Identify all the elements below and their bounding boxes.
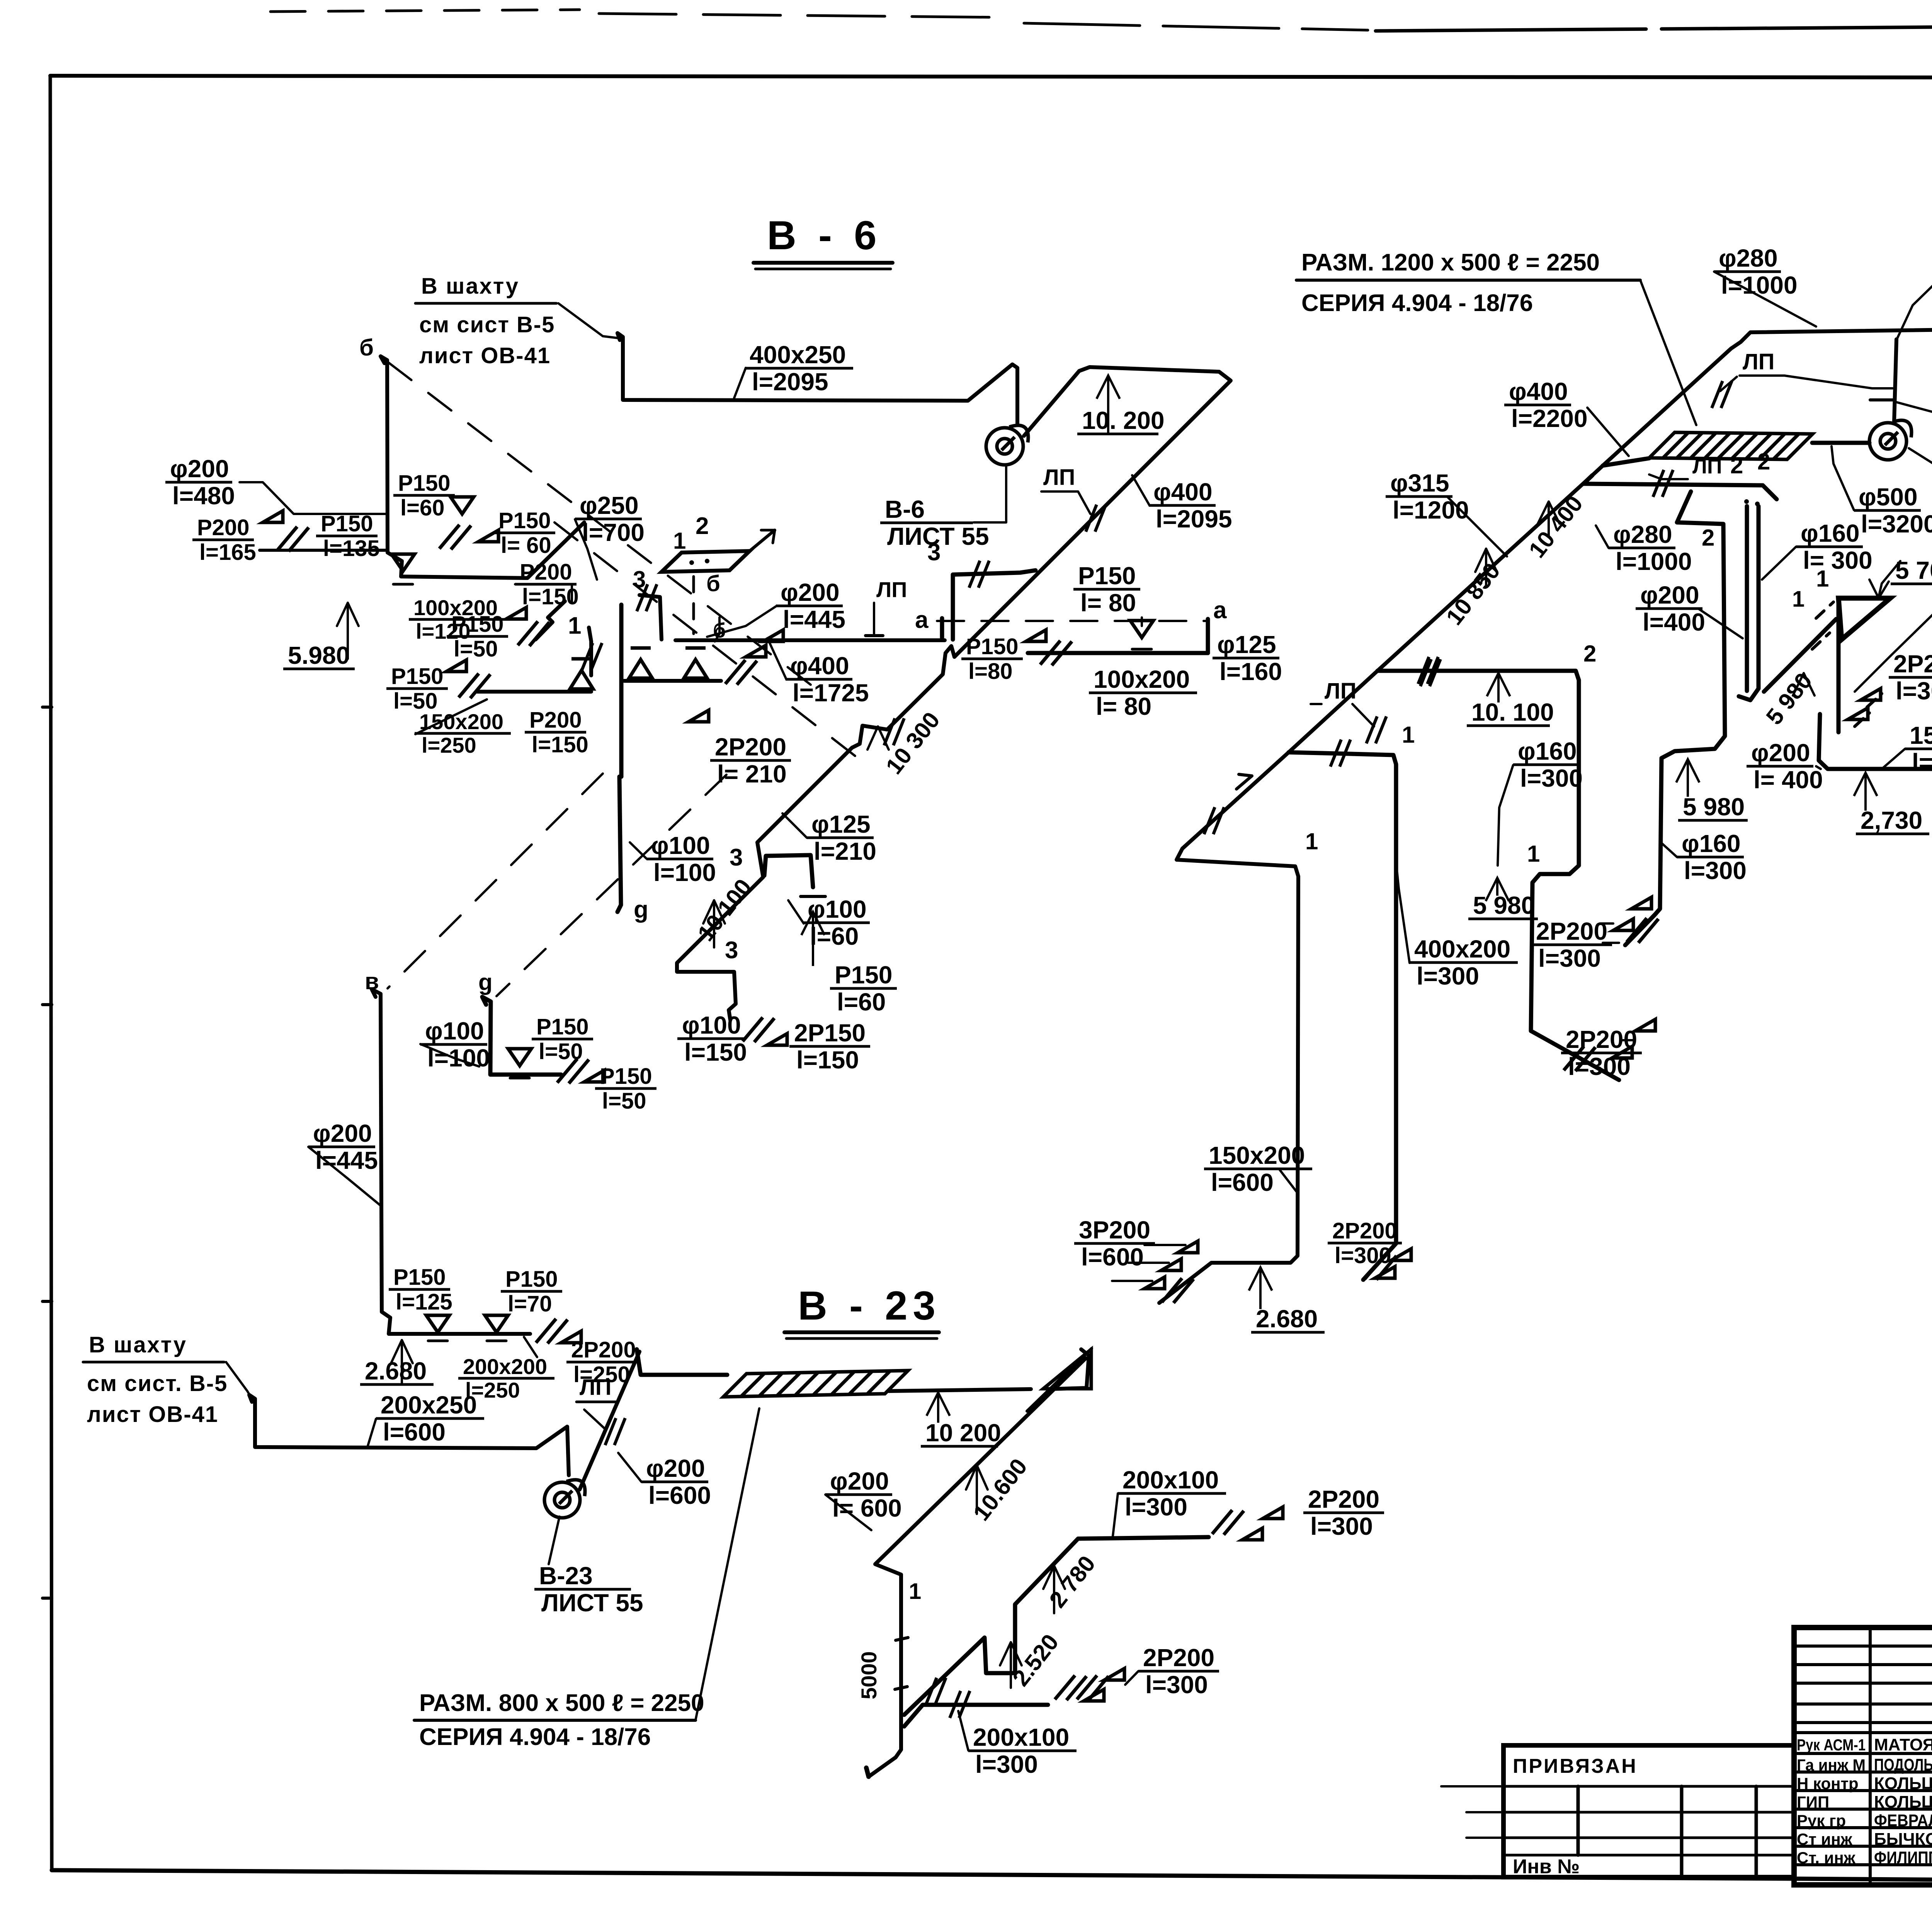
svg-text:1: 1 [568,612,581,639]
svg-text:l=50: l=50 [602,1088,646,1114]
svg-text:l=125: l=125 [396,1289,452,1315]
svg-text:3: 3 [927,539,940,566]
svg-text:2: 2 [1730,452,1743,478]
svg-text:l=1200: l=1200 [1393,496,1469,524]
svg-text:ГИП: ГИП [1797,1793,1829,1811]
svg-text:РАЗМ. 1200 х 500 ℓ = 2250: РАЗМ. 1200 х 500 ℓ = 2250 [1301,249,1600,276]
svg-text:1: 1 [1816,566,1829,592]
svg-text:В - 6: В - 6 [767,213,882,258]
svg-text:2Р200: 2Р200 [1143,1644,1214,1672]
svg-text:б: б [359,335,374,361]
svg-text:φ100: φ100 [808,895,867,923]
svg-text:l=50: l=50 [454,636,498,662]
svg-text:l=165: l=165 [199,540,256,565]
svg-text:l=150: l=150 [522,584,579,609]
svg-text:l=100: l=100 [653,859,716,886]
svg-text:l=150: l=150 [684,1038,747,1066]
svg-text:l=300: l=300 [1335,1243,1391,1268]
svg-text:φ200: φ200 [781,578,840,606]
svg-text:l=300: l=300 [1520,764,1583,792]
svg-text:l= 80: l= 80 [1096,692,1151,720]
svg-text:см сист. В-5: см сист. В-5 [87,1371,228,1396]
svg-text:l=300: l=300 [1896,677,1932,705]
svg-text:150x200: 150x200 [1209,1141,1305,1169]
svg-text:l=160: l=160 [1219,658,1282,685]
svg-text:Р150: Р150 [498,508,551,533]
svg-text:l=480: l=480 [172,482,235,510]
svg-text:l=300: l=300 [1125,1493,1187,1521]
svg-text:5.980: 5.980 [288,641,350,669]
svg-text:3: 3 [730,844,743,871]
svg-text:l=300: l=300 [1538,944,1601,972]
svg-text:l=1000: l=1000 [1616,548,1692,575]
svg-text:3Р200: 3Р200 [1079,1216,1150,1244]
svg-text:φ100: φ100 [425,1017,484,1045]
svg-text:5000: 5000 [857,1651,881,1699]
svg-text:400x200: 400x200 [1414,935,1510,963]
svg-text:2Р200: 2Р200 [1308,1485,1379,1513]
svg-text:В-23: В-23 [539,1562,593,1590]
svg-text:Н контр: Н контр [1797,1774,1859,1793]
svg-text:φ100: φ100 [682,1011,741,1039]
svg-text:l=1725: l=1725 [793,679,869,707]
svg-text:см сист В-5: см сист В-5 [419,312,555,337]
svg-text:l=300: l=300 [1310,1512,1373,1540]
svg-text:l=600: l=600 [648,1481,711,1509]
svg-text:l= 210: l= 210 [717,760,787,788]
svg-text:l=300: l=300 [1417,962,1479,990]
svg-text:Р150: Р150 [1078,562,1136,590]
svg-text:ЛП: ЛП [1692,455,1722,478]
svg-text:l=2095: l=2095 [752,368,828,396]
svg-text:Га инж М: Га инж М [1797,1756,1866,1774]
svg-text:Р200: Р200 [197,515,249,540]
svg-text:ЛП: ЛП [876,577,907,602]
svg-text:l=2095: l=2095 [1156,505,1232,533]
svg-text:l=2200: l=2200 [1511,405,1588,432]
svg-text:l=60: l=60 [400,495,445,520]
svg-text:l=400: l=400 [1643,608,1705,636]
svg-text:БЫЧКОВА: БЫЧКОВА [1874,1830,1932,1849]
svg-text:Р150: Р150 [393,1265,446,1290]
svg-text:а: а [915,607,929,633]
svg-text:2.680: 2.680 [365,1357,427,1385]
svg-text:φ280: φ280 [1613,520,1672,548]
svg-text:200x100: 200x100 [973,1723,1069,1751]
svg-text:l=210: l=210 [814,837,876,865]
svg-text:150x150: 150x150 [1910,721,1932,749]
svg-text:3: 3 [725,937,738,964]
svg-text:l=400: l=400 [1912,748,1932,776]
svg-text:В шахту: В шахту [89,1332,187,1357]
svg-text:Р150: Р150 [321,511,373,536]
svg-text:l=80: l=80 [968,659,1013,684]
svg-text:l=300: l=300 [1684,857,1747,884]
svg-text:2Р200: 2Р200 [715,733,786,761]
svg-text:лист ОВ-41: лист ОВ-41 [419,343,551,368]
svg-text:Ст инж: Ст инж [1797,1830,1853,1848]
svg-text:φ125: φ125 [1217,631,1276,658]
svg-text:Р200: Р200 [529,707,582,733]
svg-text:КОЛЬЦОВА: КОЛЬЦОВА [1874,1793,1932,1811]
svg-text:Р150: Р150 [835,961,892,989]
svg-text:Р150: Р150 [536,1014,588,1039]
svg-text:l=300: l=300 [975,1750,1038,1778]
svg-text:ЛП: ЛП [1325,679,1356,704]
svg-text:400x250: 400x250 [750,341,846,369]
svg-text:2: 2 [1702,525,1714,551]
svg-text:1: 1 [909,1579,921,1604]
svg-text:φ200: φ200 [170,455,229,483]
svg-text:l=300: l=300 [1145,1671,1208,1699]
svg-text:200x200: 200x200 [463,1354,547,1379]
svg-text:2Р200: 2Р200 [571,1337,636,1362]
svg-text:ФИЛИППОВА: ФИЛИППОВА [1874,1848,1932,1867]
svg-text:10. 100: 10. 100 [1471,698,1554,726]
svg-text:φ500: φ500 [1859,483,1918,511]
svg-text:Р150: Р150 [966,634,1018,659]
svg-text:Р150: Р150 [398,471,450,496]
svg-text:10 200: 10 200 [925,1419,1001,1447]
svg-text:l= 60: l= 60 [501,533,551,558]
svg-text:1: 1 [1402,722,1415,748]
svg-text:φ315: φ315 [1390,469,1449,497]
svg-text:2Р150: 2Р150 [794,1019,866,1047]
svg-text:l=150: l=150 [532,732,588,757]
svg-text:Р150: Р150 [600,1064,652,1089]
svg-text:l=250: l=250 [422,733,476,757]
svg-text:φ200: φ200 [646,1454,705,1482]
svg-text:200x100: 200x100 [1122,1466,1219,1494]
svg-text:5 980: 5 980 [1473,891,1535,919]
svg-text:В шахту: В шахту [421,274,519,299]
svg-text:150x200: 150x200 [419,709,503,734]
svg-text:2Р200: 2Р200 [1332,1218,1397,1243]
svg-text:5 980: 5 980 [1683,793,1745,821]
svg-text:ЛП: ЛП [1743,349,1774,374]
svg-text:φ160: φ160 [1801,519,1860,547]
svg-text:В - 23: В - 23 [798,1283,941,1328]
svg-text:лист ОВ-41: лист ОВ-41 [87,1402,218,1427]
svg-text:l=600: l=600 [383,1418,446,1446]
svg-text:l= 300: l= 300 [1803,546,1872,574]
svg-text:б: б [706,571,720,596]
svg-text:φ200: φ200 [1640,581,1699,609]
svg-text:ПРИВЯЗАН: ПРИВЯЗАН [1513,1755,1638,1777]
svg-text:РАЗМ. 800 х 500 ℓ = 2250: РАЗМ. 800 х 500 ℓ = 2250 [419,1690,704,1716]
svg-text:l=135: l=135 [323,536,380,561]
svg-text:φ125: φ125 [811,810,871,838]
svg-text:l=70: l=70 [508,1291,552,1316]
svg-text:ЛИСТ 55: ЛИСТ 55 [541,1589,643,1617]
svg-text:Р150: Р150 [451,612,503,637]
svg-text:1: 1 [1792,587,1804,612]
svg-text:2: 2 [1583,641,1596,667]
svg-text:l=60: l=60 [837,988,886,1016]
svg-text:φ160: φ160 [1682,830,1741,857]
svg-text:СЕРИЯ 4.904 - 18/76: СЕРИЯ 4.904 - 18/76 [419,1724,651,1750]
svg-text:φ160: φ160 [1518,737,1577,765]
svg-text:g: g [478,969,493,995]
svg-text:g: g [634,896,648,923]
svg-text:l=445: l=445 [783,605,845,633]
svg-text:l=600: l=600 [1081,1243,1144,1271]
svg-text:Р200: Р200 [520,560,572,585]
svg-text:φ200: φ200 [313,1119,372,1147]
svg-text:l=700: l=700 [582,519,645,546]
svg-text:φ400: φ400 [1153,478,1213,506]
svg-text:φ200: φ200 [830,1467,889,1495]
svg-text:φ400: φ400 [1509,378,1568,405]
svg-text:2Р200: 2Р200 [1893,650,1932,678]
svg-text:l=100: l=100 [427,1044,490,1072]
svg-text:ЛП: ЛП [1043,465,1075,490]
svg-text:а: а [1213,597,1227,624]
svg-text:1: 1 [673,528,686,554]
svg-text:Ст. инж: Ст. инж [1797,1849,1856,1867]
svg-text:1: 1 [1527,841,1540,867]
svg-text:Рук АСМ-1: Рук АСМ-1 [1797,1736,1866,1754]
svg-text:1: 1 [1305,828,1318,854]
svg-text:2,730: 2,730 [1861,806,1922,834]
svg-text:2Р200: 2Р200 [1536,917,1607,945]
svg-text:Рук гр: Рук гр [1797,1811,1846,1830]
svg-text:Р150: Р150 [505,1267,558,1292]
svg-text:МАТОЯН: МАТОЯН [1874,1735,1932,1754]
svg-text:100x200: 100x200 [1094,665,1190,693]
svg-text:Р150: Р150 [391,664,443,689]
svg-text:ФЕВРАЛЕВА: ФЕВРАЛЕВА [1874,1811,1932,1830]
svg-text:10. 200: 10. 200 [1082,406,1165,434]
svg-text:l=600: l=600 [1211,1168,1274,1196]
svg-text:Инв №: Инв № [1513,1855,1580,1878]
svg-text:φ280: φ280 [1719,244,1778,272]
svg-text:l=3200: l=3200 [1861,510,1932,538]
svg-text:КОЛЬЦОВА: КОЛЬЦОВА [1874,1774,1932,1793]
svg-text:ЛП: ЛП [580,1375,611,1400]
svg-text:200x250: 200x250 [381,1391,477,1419]
svg-text:l= 80: l= 80 [1080,589,1136,617]
svg-text:В-6: В-6 [885,495,925,523]
svg-text:l=60: l=60 [810,922,859,950]
svg-text:l= 400: l= 400 [1753,766,1823,794]
svg-text:φ200: φ200 [1751,739,1810,767]
svg-text:2.680: 2.680 [1256,1305,1318,1333]
svg-text:СЕРИЯ 4.904 - 18/76: СЕРИЯ 4.904 - 18/76 [1301,290,1533,316]
svg-text:2: 2 [1757,449,1770,474]
svg-text:2: 2 [696,513,709,539]
svg-text:l=150: l=150 [796,1046,859,1074]
svg-text:ПОДОЛЬСКИЙ: ПОДОЛЬСКИЙ [1874,1755,1932,1774]
svg-text:φ100: φ100 [651,832,710,859]
